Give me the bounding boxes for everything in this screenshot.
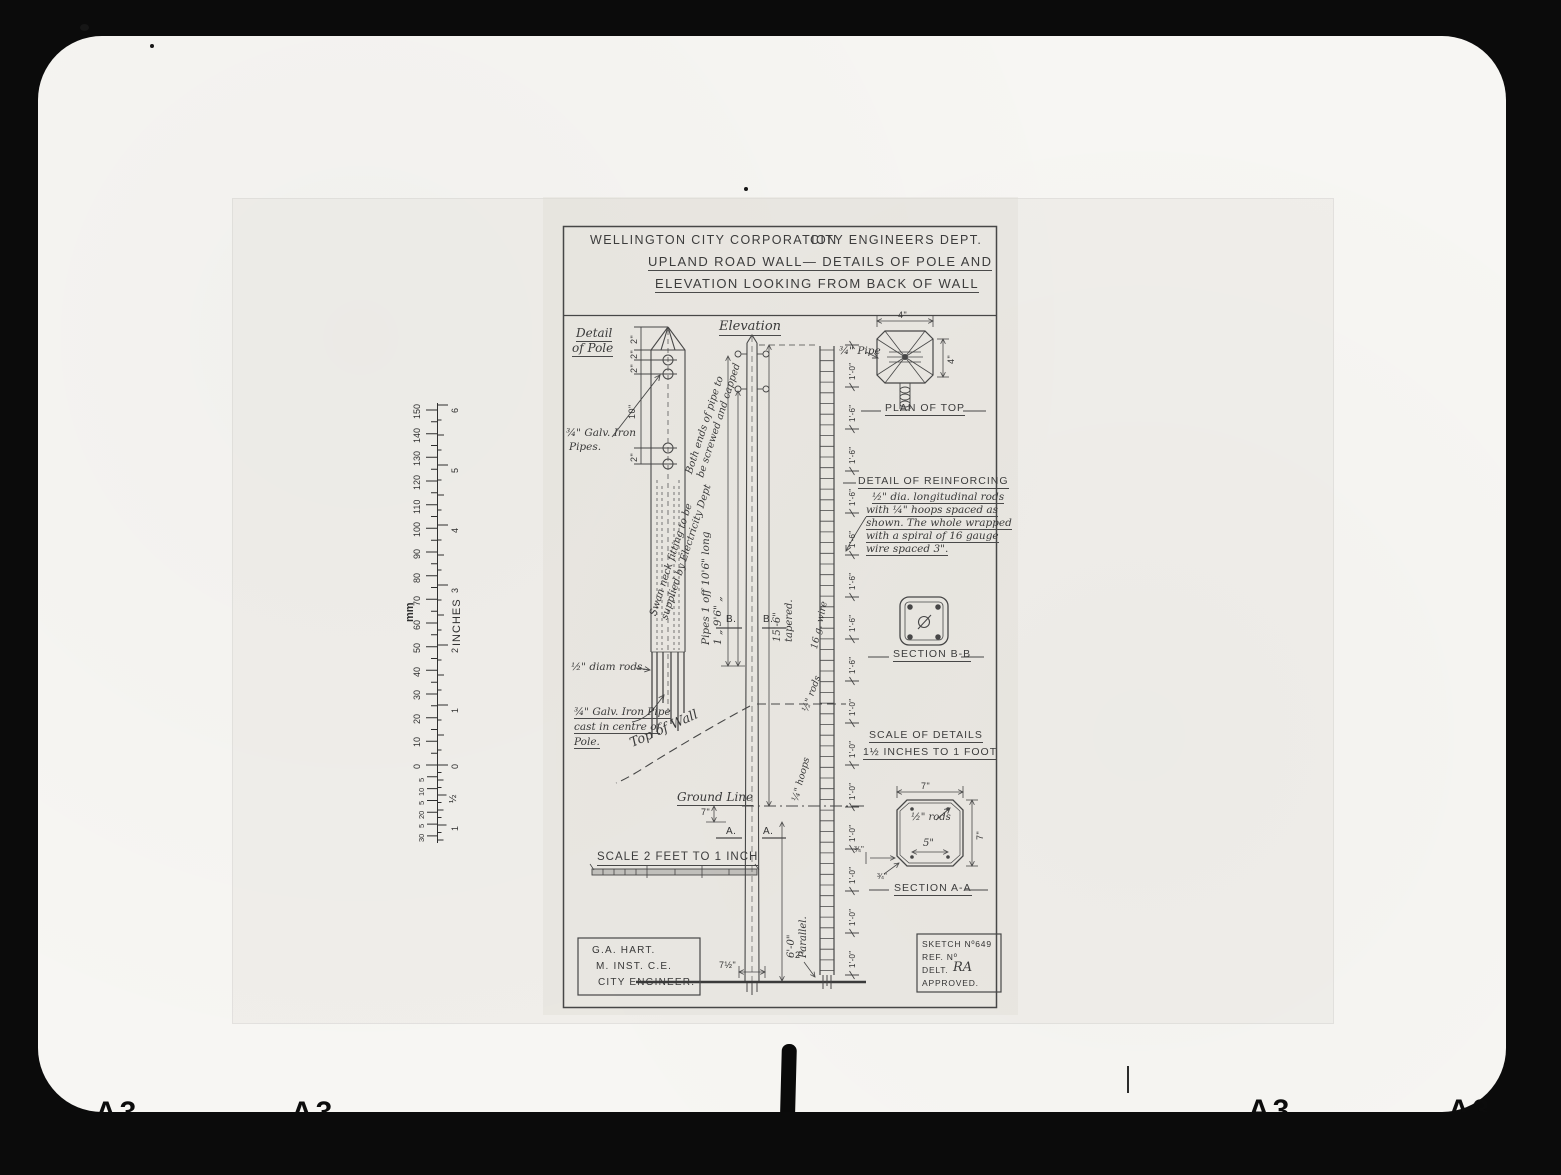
pipe-schedule-1: Pipes 1 off 10'6" long xyxy=(700,532,712,645)
ruler-mm-20: 20 xyxy=(412,714,422,724)
ruler-mm-100: 100 xyxy=(412,522,422,537)
ruler-mm-130: 130 xyxy=(412,451,422,466)
galv-pipes-label-2: Pipes. xyxy=(569,441,601,453)
elevation-heading: Elevation xyxy=(719,320,781,336)
hoop-spacing-dim-7: 1'-6" xyxy=(848,657,857,674)
engineer-name: G.A. HART. xyxy=(592,945,656,957)
marker-a-left: A. xyxy=(726,826,736,838)
delt-label: DELT. xyxy=(922,966,949,976)
diam-rods-label: ½" diam rods. xyxy=(571,661,646,673)
marker-b-right: B. xyxy=(763,614,773,626)
ruler-inch-5: 5 xyxy=(450,468,460,473)
ruler-mm-40: 40 xyxy=(412,667,422,677)
reinforcing-note-1: ½" dia. longitudinal rods xyxy=(872,491,1004,504)
hoop-spacing-dim-9: 1'-0" xyxy=(848,741,857,758)
aa-chamfer-dim-1: ¾" xyxy=(854,845,864,854)
hoop-spacing-dim-14: 1'-0" xyxy=(848,951,857,968)
section-aa-caption: SECTION A-A xyxy=(894,882,972,896)
ruler-mm-140: 140 xyxy=(412,428,422,443)
sketch-number: SKETCH Nº649 xyxy=(922,940,992,950)
drawing-title-line1: UPLAND ROAD WALL— DETAILS OF POLE AND xyxy=(648,255,992,271)
plan-of-top-caption: PLAN OF TOP xyxy=(885,402,965,416)
aa-width-dim: 7" xyxy=(921,781,930,791)
tapered-dim-1: 15'-6" xyxy=(772,599,784,642)
pipe-cast-label-3: Pole. xyxy=(574,736,600,749)
ruler-inch-1: 1 xyxy=(450,708,460,713)
main-scale-caption: SCALE 2 FEET TO 1 INCH xyxy=(597,851,758,866)
hoop-spacing-dim-5: 1'-6" xyxy=(848,573,857,590)
ruler-inch-3: 3 xyxy=(450,588,460,593)
pole-detail-heading-1: Detail xyxy=(576,327,612,342)
hoop-spacing-dim-1: 1'-6" xyxy=(848,405,857,422)
plan-pipe-label: ¾" Pipe xyxy=(839,345,881,357)
hoop-spacing-dim-11: 1'-0" xyxy=(848,825,857,842)
ruler-mm-120: 120 xyxy=(412,475,422,490)
plan-width-dim: 4" xyxy=(898,310,907,320)
film-bottom-border xyxy=(0,1112,1561,1175)
ruler-inch-4: 4 xyxy=(450,528,460,533)
ruler-mm-30: 30 xyxy=(412,690,422,700)
hoop-spacing-dim-12: 1'-0" xyxy=(848,867,857,884)
pole-detail-heading-2: of Pole xyxy=(572,342,613,357)
scale-details-line2: 1½ INCHES TO 1 FOOT xyxy=(863,746,997,760)
ruler-inches-label: INCHES xyxy=(451,598,463,646)
ruler-mm-10: 10 xyxy=(412,737,422,747)
reinforcing-note-3: shown. The whole wrapped xyxy=(866,517,1012,530)
ground-line-label: Ground Line xyxy=(677,791,753,806)
plan-height-dim: 4" xyxy=(946,355,956,364)
ground-dim: 7" xyxy=(701,807,710,817)
drawing-linework xyxy=(0,0,1561,1175)
ruler-mm-sub-10: 10 xyxy=(417,788,426,796)
reinforcing-note-4: with a spiral of 16 gauge xyxy=(866,530,999,543)
organisation-name: WELLINGTON CITY CORPORATION xyxy=(590,233,838,247)
pipe-cast-label-1: ¾" Galv. Iron Pipe xyxy=(574,706,671,719)
ruler-mm-sub-5: 5 xyxy=(417,778,426,782)
film-scan: WELLINGTON CITY CORPORATION CITY ENGINEE… xyxy=(0,0,1561,1175)
pole-dim-1: 2" xyxy=(629,350,639,359)
ruler-mm-150: 150 xyxy=(412,404,422,419)
aa-height-dim: 7" xyxy=(975,831,985,840)
pipe-schedule: Pipes 1 off 10'6" long 1 „ 9'6" „ xyxy=(700,532,724,645)
reinforcing-note-5: wire spaced 3". xyxy=(866,543,948,556)
bottom-dim: 2" xyxy=(795,950,804,960)
ruler-mm-110: 110 xyxy=(412,500,422,514)
hoop-spacing-dim-13: 1'-0" xyxy=(848,909,857,926)
reinforcing-heading: DETAIL OF REINFORCING xyxy=(858,475,1009,489)
hoop-spacing-dim-0: 1'-0" xyxy=(848,363,857,380)
reinforcing-note-2: with ¼" hoops spaced as xyxy=(866,504,998,517)
pole-dim-4: 2" xyxy=(629,453,639,462)
hoop-spacing-dim-8: 1'-0" xyxy=(848,699,857,716)
hoop-spacing-dim-10: 1'-0" xyxy=(848,783,857,800)
film-registration-mark xyxy=(780,1044,797,1114)
pipe-schedule-2: 1 „ 9'6" „ xyxy=(712,532,724,645)
ruler-mm-sub-30: 30 xyxy=(417,834,426,842)
scale-details-line1: SCALE OF DETAILS xyxy=(869,729,983,743)
ruler-mm-0: 0 xyxy=(412,764,422,769)
film-speck xyxy=(80,24,89,31)
approved-label: APPROVED. xyxy=(922,979,979,989)
hoop-spacing-dim-3: 1'-6" xyxy=(848,489,857,506)
film-scratch-mark xyxy=(1127,1066,1129,1093)
film-speck xyxy=(150,44,154,48)
department-name: CITY ENGINEERS DEPT. xyxy=(810,233,982,247)
hoop-spacing-dim-2: 1'-6" xyxy=(848,447,857,464)
tapered-dim: 15'-6" tapered. xyxy=(772,599,795,642)
marker-b-left: B. xyxy=(726,614,736,626)
aa-inner-dim: 5" xyxy=(923,838,934,850)
hoop-spacing-dim-4: 1'-6" xyxy=(848,531,857,548)
pole-base-dim: 7½" xyxy=(719,960,736,970)
section-bb-caption: SECTION B-B xyxy=(893,648,971,662)
aa-chamfer-dim-2: ¾" xyxy=(877,872,887,881)
ruler-inch-half: ½ xyxy=(448,795,459,803)
tapered-dim-2: tapered. xyxy=(784,599,796,642)
engineer-qualification: M. INST. C.E. xyxy=(596,961,672,973)
ruler-mm-sub-25: 5 xyxy=(417,824,426,828)
ruler-mm-label: mm xyxy=(404,602,416,622)
ruler-inch-2: 2 xyxy=(450,648,460,653)
ruler-mm-90: 90 xyxy=(412,549,422,559)
ruler-inch-sub-1: 1 xyxy=(450,826,460,831)
aa-rods-label: ½" rods xyxy=(911,812,951,824)
marker-a-right: A. xyxy=(763,826,773,838)
pole-dim-0: 2" xyxy=(629,335,639,344)
delt-signature: RA xyxy=(953,961,972,976)
ruler-mm-sub-20: 20 xyxy=(417,811,426,819)
pole-dim-2: 2" xyxy=(629,364,639,373)
ruler-inch-6: 6 xyxy=(450,408,460,413)
ruler-mm-80: 80 xyxy=(412,573,422,583)
galv-pipes-label-1: ¾" Galv. Iron xyxy=(566,427,636,439)
ruler-inch-0: 0 xyxy=(450,764,460,769)
pole-dim-3: 10" xyxy=(627,404,637,419)
hoop-spacing-dim-6: 1'-6" xyxy=(848,615,857,632)
film-speck xyxy=(744,187,748,191)
ruler-mm-sub-15: 5 xyxy=(417,801,426,805)
ruler-mm-50: 50 xyxy=(412,643,422,653)
drawing-title-line2: ELEVATION LOOKING FROM BACK OF WALL xyxy=(655,277,979,293)
engineer-title: CITY ENGINEER. xyxy=(598,977,695,989)
